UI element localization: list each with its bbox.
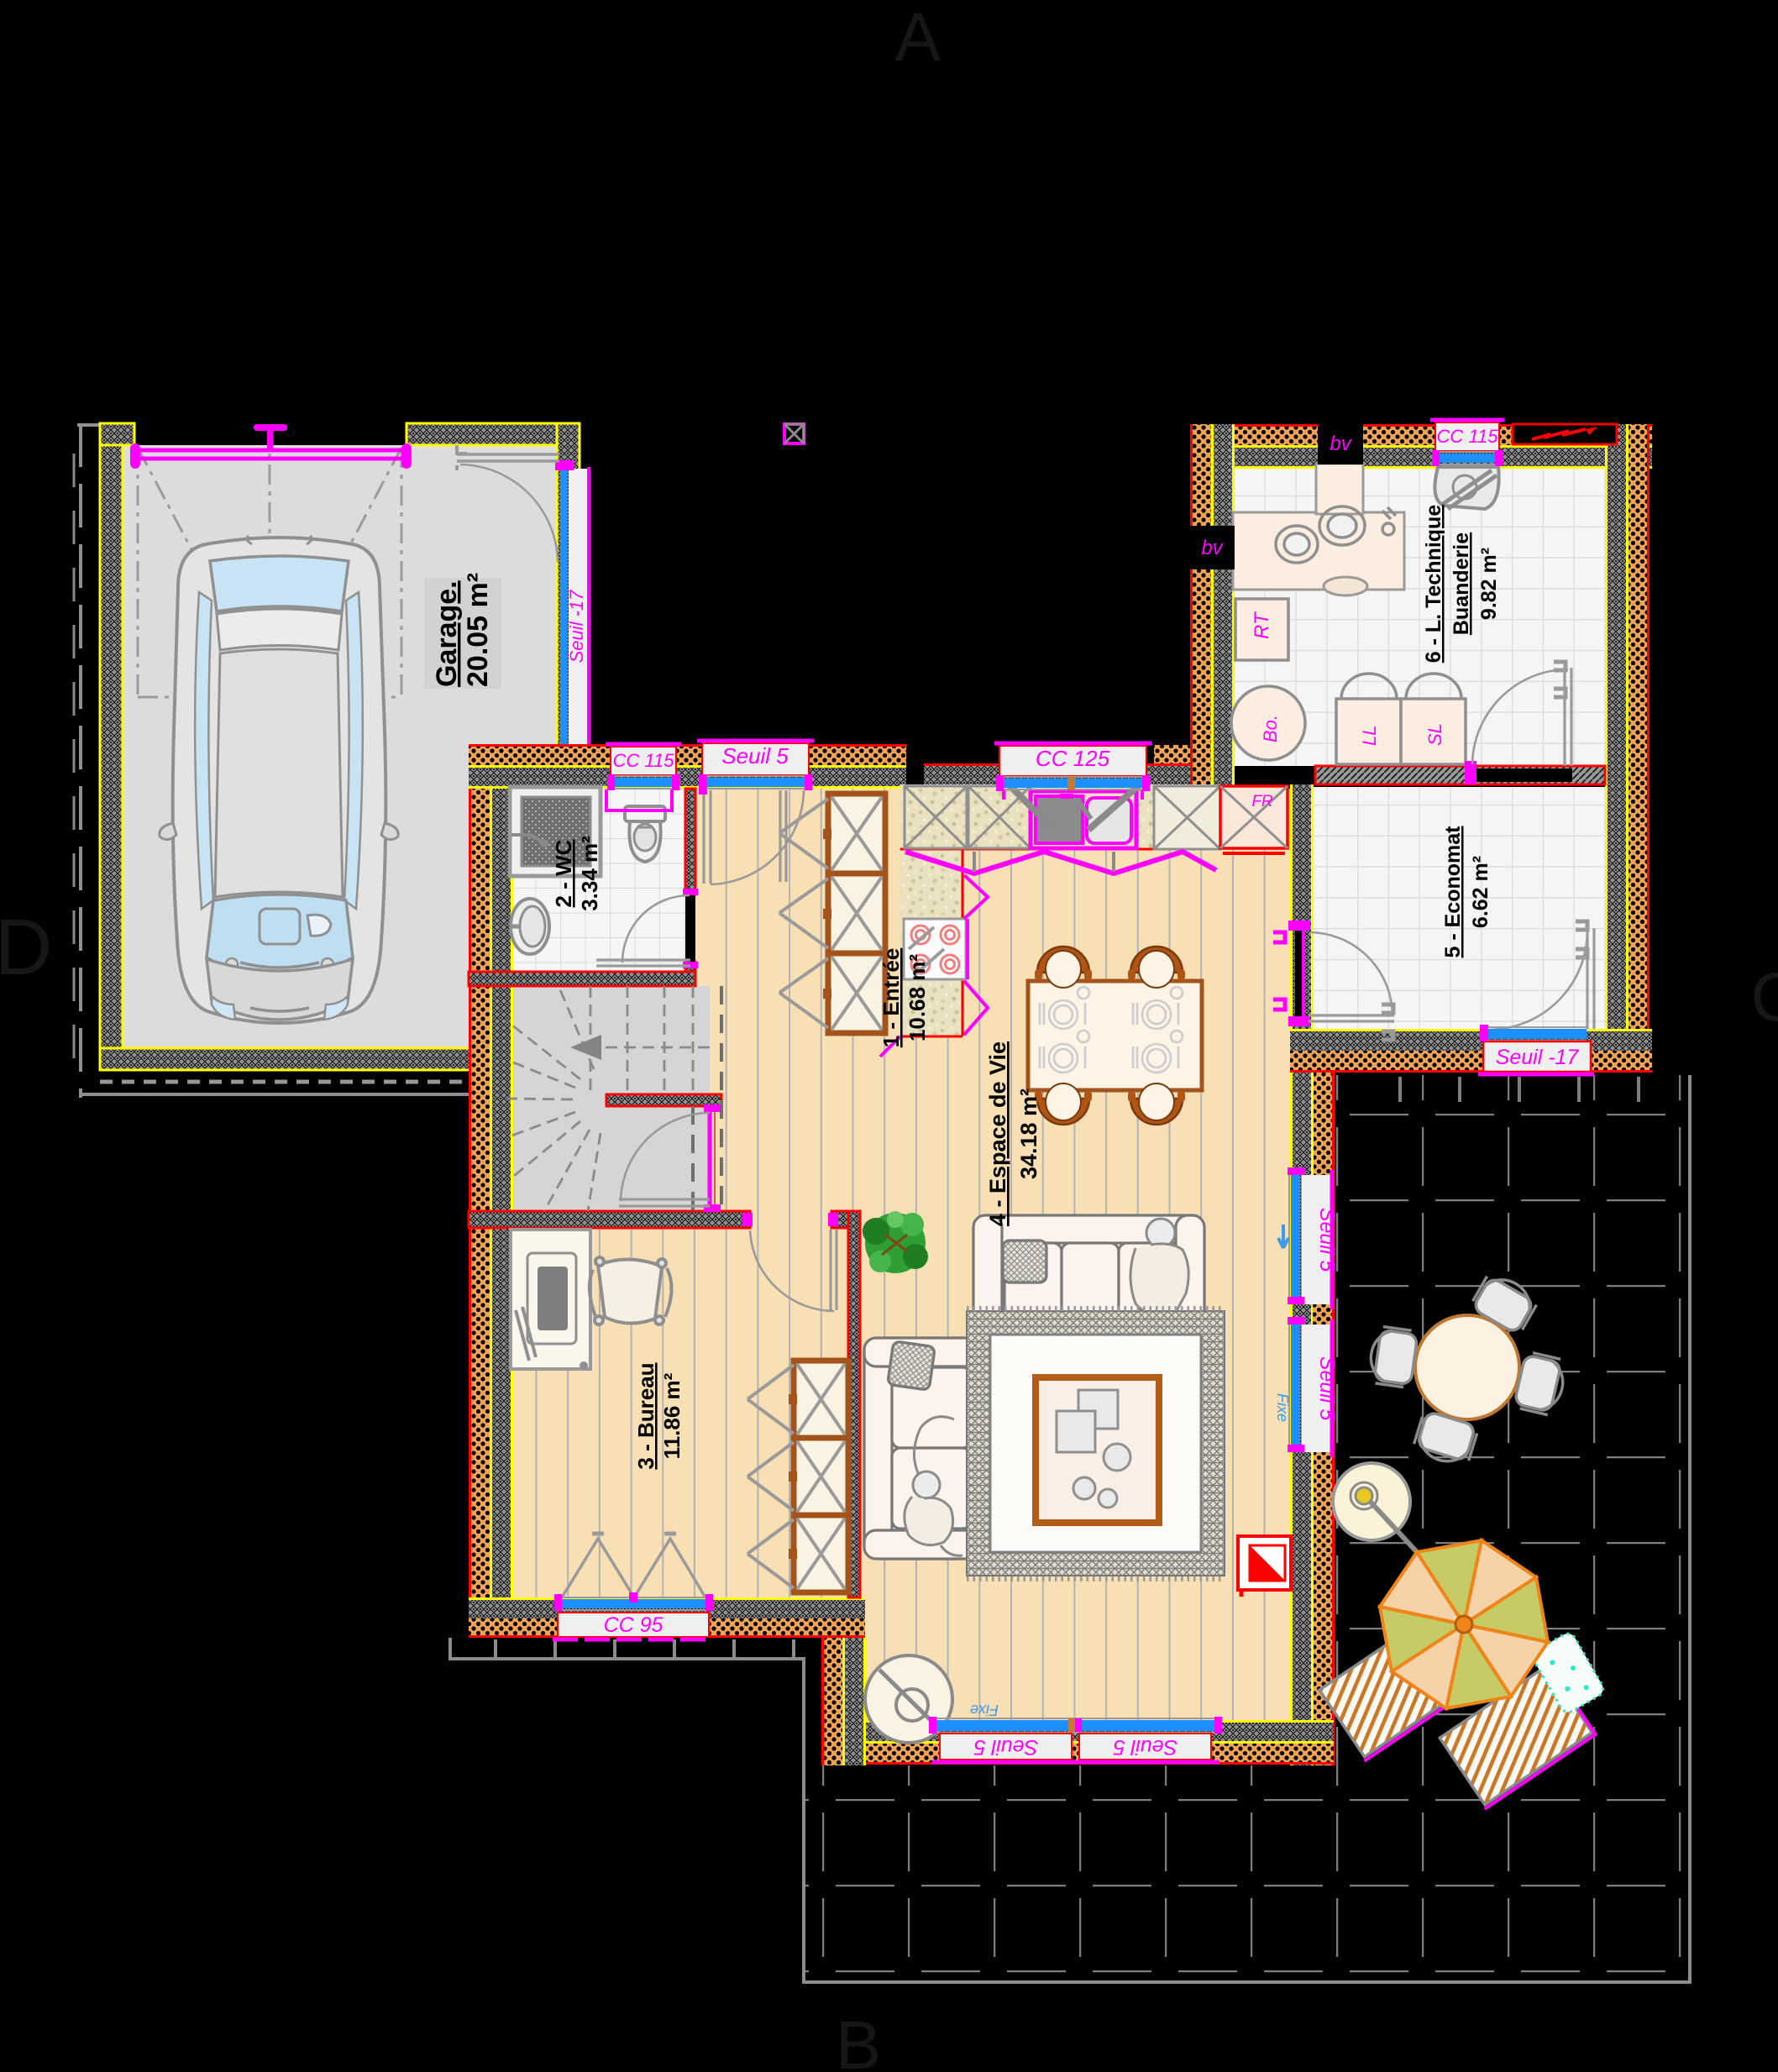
svg-text:3 - Bureau: 3 - Bureau xyxy=(633,1362,658,1469)
svg-text:A: A xyxy=(895,0,941,76)
svg-text:2 - WC: 2 - WC xyxy=(551,839,576,907)
svg-text:Seuil 5: Seuil 5 xyxy=(1114,1735,1178,1759)
svg-text:10.68 m²: 10.68 m² xyxy=(905,954,930,1041)
svg-text:5 - Economat: 5 - Economat xyxy=(1441,826,1465,958)
svg-text:Seuil -17: Seuil -17 xyxy=(1496,1046,1580,1069)
svg-text:6.62 m²: 6.62 m² xyxy=(1469,856,1492,928)
svg-text:6 - L. Technique: 6 - L. Technique xyxy=(1422,505,1445,664)
svg-text:Seuil 5: Seuil 5 xyxy=(974,1735,1039,1759)
svg-text:Seuil 5: Seuil 5 xyxy=(721,743,789,768)
svg-text:CC 115: CC 115 xyxy=(1437,426,1499,447)
svg-text:34.18 m²: 34.18 m² xyxy=(1016,1088,1041,1179)
svg-text:Garage.: Garage. xyxy=(431,580,463,687)
svg-text:1 - Entrée: 1 - Entrée xyxy=(879,948,904,1048)
svg-text:B: B xyxy=(836,2007,882,2072)
svg-text:Buanderie: Buanderie xyxy=(1450,532,1473,635)
svg-text:CC 115: CC 115 xyxy=(613,750,675,771)
svg-text:RT: RT xyxy=(1251,611,1273,639)
svg-text:Seuil -17: Seuil -17 xyxy=(566,590,587,664)
svg-text:20.05 m²: 20.05 m² xyxy=(462,573,494,687)
svg-text:D: D xyxy=(0,903,52,992)
svg-text:CC 95: CC 95 xyxy=(604,1613,663,1637)
svg-text:CC 125: CC 125 xyxy=(1036,746,1110,771)
svg-text:4 - Espace de Vie: 4 - Espace de Vie xyxy=(985,1041,1010,1226)
svg-text:bv: bv xyxy=(1330,433,1352,455)
svg-text:Bo.: Bo. xyxy=(1260,715,1281,742)
svg-text:3.34 m²: 3.34 m² xyxy=(577,836,602,911)
svg-text:Fixe: Fixe xyxy=(1274,1393,1291,1422)
svg-text:Seuil 5: Seuil 5 xyxy=(1315,1208,1339,1272)
svg-text:Fixe: Fixe xyxy=(970,1702,999,1718)
svg-text:FR: FR xyxy=(1251,793,1273,810)
svg-text:bv: bv xyxy=(1201,537,1224,559)
svg-text:Seuil 5: Seuil 5 xyxy=(1315,1356,1339,1421)
svg-text:LL: LL xyxy=(1359,726,1380,746)
svg-text:11.86 m²: 11.86 m² xyxy=(659,1372,684,1459)
svg-text:9.82 m²: 9.82 m² xyxy=(1477,548,1501,620)
svg-text:SL: SL xyxy=(1424,723,1445,746)
svg-text:C: C xyxy=(1750,959,1778,1036)
